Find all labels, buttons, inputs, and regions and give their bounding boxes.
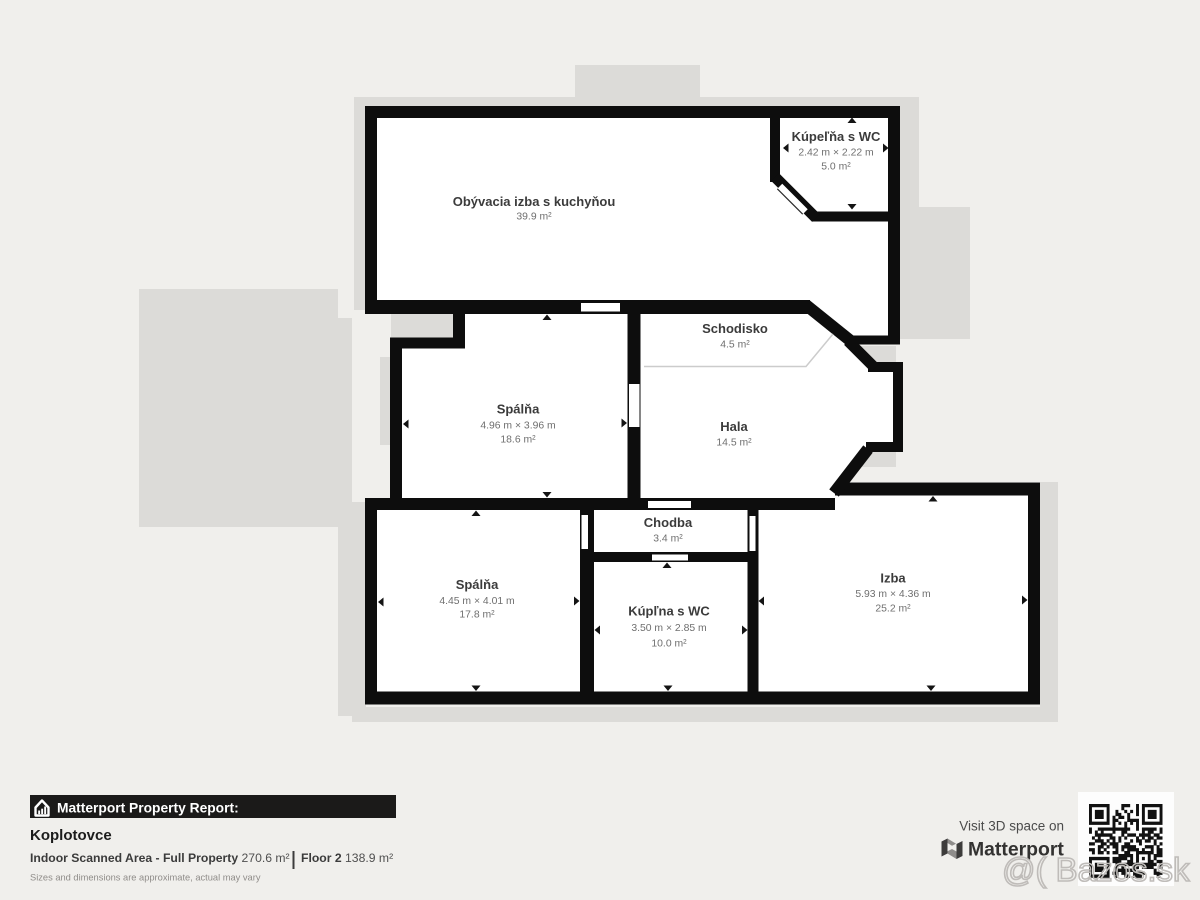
svg-text:Matterport Property Report:: Matterport Property Report:: [57, 801, 239, 816]
svg-text:25.2 m²: 25.2 m²: [875, 604, 911, 615]
svg-text:Indoor Scanned Area - Full Pro: Indoor Scanned Area - Full Property 270.…: [30, 851, 290, 865]
svg-text:39.9 m²: 39.9 m²: [516, 212, 552, 223]
svg-text:4.96 m × 3.96 m: 4.96 m × 3.96 m: [480, 421, 555, 432]
svg-text:17.8 m²: 17.8 m²: [459, 610, 495, 621]
svg-text:Hala: Hala: [720, 419, 748, 434]
svg-text:18.6 m²: 18.6 m²: [500, 435, 536, 446]
svg-text:Chodba: Chodba: [644, 515, 693, 530]
svg-text:Spálňa: Spálňa: [497, 402, 540, 417]
svg-text:@( Bazos.sk: @( Bazos.sk: [1002, 851, 1190, 888]
svg-text:14.5 m²: 14.5 m²: [716, 438, 752, 449]
svg-text:Kúpeľňa s WC: Kúpeľňa s WC: [792, 129, 881, 144]
svg-text:3.4 m²: 3.4 m²: [653, 534, 683, 545]
svg-text:Koplotovce: Koplotovce: [30, 827, 112, 844]
svg-text:4.5 m²: 4.5 m²: [720, 340, 750, 351]
svg-text:10.0 m²: 10.0 m²: [651, 639, 687, 650]
svg-text:Floor 2 138.9 m²: Floor 2 138.9 m²: [301, 851, 393, 865]
svg-text:5.0 m²: 5.0 m²: [821, 162, 851, 173]
svg-text:2.42 m × 2.22 m: 2.42 m × 2.22 m: [798, 148, 873, 159]
svg-text:3.50 m × 2.85 m: 3.50 m × 2.85 m: [631, 623, 706, 634]
svg-text:5.93 m × 4.36 m: 5.93 m × 4.36 m: [855, 589, 930, 600]
svg-text:Obývacia izba s kuchyňou: Obývacia izba s kuchyňou: [453, 194, 616, 209]
svg-text:Sizes and dimensions are appro: Sizes and dimensions are approximate, ac…: [30, 873, 261, 883]
svg-text:Izba: Izba: [880, 571, 906, 586]
svg-text:Visit 3D space on: Visit 3D space on: [959, 819, 1064, 834]
svg-text:Spálňa: Spálňa: [456, 577, 499, 592]
svg-text:4.45 m × 4.01 m: 4.45 m × 4.01 m: [439, 596, 514, 607]
svg-text:Kúpľna s WC: Kúpľna s WC: [628, 604, 710, 619]
svg-text:Schodisko: Schodisko: [702, 321, 768, 336]
